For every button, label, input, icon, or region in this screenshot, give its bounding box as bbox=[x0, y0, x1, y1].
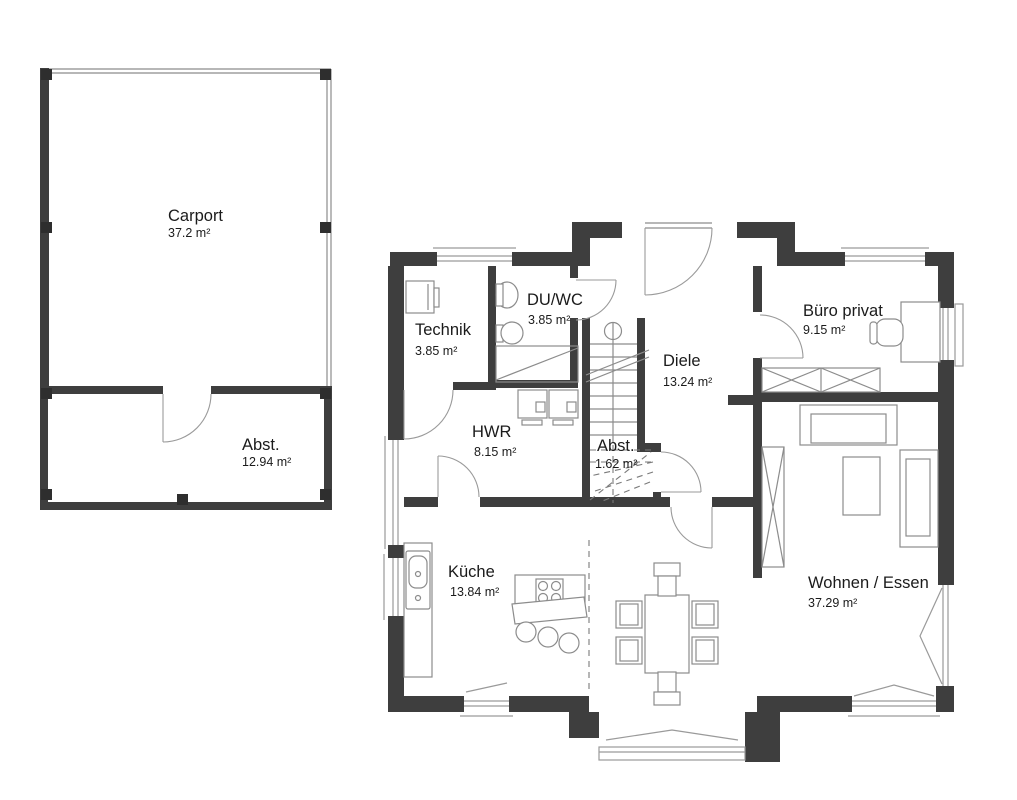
kitchen-counter bbox=[404, 543, 432, 677]
sofa-top bbox=[800, 405, 897, 445]
window-wohnen-right bbox=[920, 585, 948, 686]
room-label-wohnen: Wohnen / Essen bbox=[808, 574, 929, 592]
window-kitchen-bottom bbox=[460, 683, 513, 716]
room-area-wohnen: 37.29 m² bbox=[808, 596, 857, 610]
room-label-technik: Technik bbox=[415, 321, 472, 339]
room-area-buero: 9.15 m² bbox=[803, 323, 845, 337]
desk bbox=[901, 302, 940, 362]
porch-right-pier bbox=[737, 222, 795, 266]
room-label-kueche: Küche bbox=[448, 563, 495, 581]
room-area-hwr: 8.15 m² bbox=[474, 445, 516, 459]
door-buero bbox=[760, 315, 803, 358]
door-abst-stairs bbox=[661, 452, 701, 492]
window-buero-right bbox=[943, 304, 963, 366]
toilet bbox=[496, 322, 523, 344]
door-entrance bbox=[645, 228, 712, 295]
room-area-technik: 3.85 m² bbox=[415, 344, 457, 358]
sideboard-buero bbox=[762, 368, 880, 392]
window-buero-top bbox=[841, 248, 929, 261]
bathroom-sink bbox=[496, 282, 518, 308]
window-bay-front bbox=[599, 730, 745, 762]
room-area-carport: 37.2 m² bbox=[168, 226, 210, 240]
technik-appliance bbox=[406, 281, 439, 313]
porch-left-pier bbox=[572, 222, 622, 266]
floor-plan-page: Carport 37.2 m² Abst. 12.94 m² bbox=[0, 0, 1017, 800]
desk-chair bbox=[870, 319, 903, 346]
room-label-buero: Büro privat bbox=[803, 302, 883, 320]
house: Technik 3.85 m² DU/WC 3.85 m² Diele 13.2… bbox=[384, 222, 963, 762]
washing-machines bbox=[518, 390, 578, 425]
room-area-duwc: 3.85 m² bbox=[528, 313, 570, 327]
carport: Carport 37.2 m² Abst. 12.94 m² bbox=[40, 68, 332, 510]
door-diele-essen bbox=[671, 507, 712, 548]
sofa-right bbox=[900, 450, 938, 547]
room-label-carport-abst: Abst. bbox=[242, 436, 280, 454]
shower bbox=[496, 346, 578, 382]
bay-right-pier bbox=[745, 712, 780, 762]
kitchen-island bbox=[512, 575, 587, 624]
room-label-duwc: DU/WC bbox=[527, 291, 583, 309]
room-label-carport: Carport bbox=[168, 207, 223, 225]
dining-table bbox=[645, 595, 689, 673]
coffee-table bbox=[843, 457, 880, 515]
room-area-carport-abst: 12.94 m² bbox=[242, 455, 291, 469]
door-kueche bbox=[438, 456, 479, 497]
bar-stools bbox=[516, 622, 579, 653]
entrance-threshold bbox=[645, 223, 712, 228]
window-left-tall bbox=[385, 436, 398, 549]
window-technik-top bbox=[433, 248, 516, 261]
floor-plan: Carport 37.2 m² Abst. 12.94 m² bbox=[0, 0, 1017, 800]
room-area-diele: 13.24 m² bbox=[663, 375, 712, 389]
window-kitchen-left bbox=[384, 554, 398, 620]
bay-left-pier bbox=[569, 712, 599, 738]
room-label-hwr: HWR bbox=[472, 423, 511, 441]
room-area-kueche: 13.84 m² bbox=[450, 585, 499, 599]
carport-abst-door bbox=[163, 394, 211, 442]
room-area-abst-stairs: 1.62 m² bbox=[595, 457, 637, 471]
wardrobe-tall bbox=[762, 447, 784, 567]
carport-abst-walls bbox=[40, 386, 332, 510]
room-label-abst-stairs: Abst. bbox=[597, 437, 635, 455]
window-wohnen-bottom bbox=[848, 685, 940, 716]
door-technik bbox=[404, 390, 453, 439]
room-label-diele: Diele bbox=[663, 352, 701, 370]
